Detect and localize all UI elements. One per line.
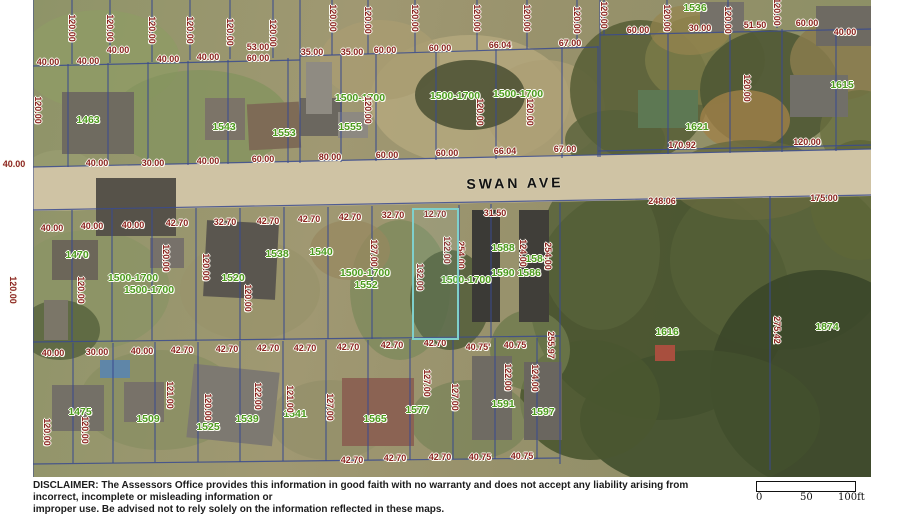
assessor-map-page: 120.00120.00120.00120.00120.00120.0040.0…	[0, 0, 900, 529]
parcel-number-label: 1500-1700	[335, 92, 385, 104]
dimension-label: 40.75	[469, 452, 492, 462]
dimension-label: 40.00	[197, 156, 220, 166]
dimension-label: 42.70	[339, 212, 362, 222]
dimension-label: 42.70	[298, 214, 321, 224]
dimension-label: 275.42	[772, 316, 782, 344]
dimension-label: 120.00	[723, 6, 733, 34]
parcel-number-label: 1621	[685, 121, 708, 133]
dimension-label: 60.00	[436, 148, 459, 158]
disclaimer-line-1: DISCLAIMER: The Assessors Office provide…	[33, 480, 688, 503]
dimension-label: 120.00	[772, 0, 782, 26]
dimension-label: 66.04	[489, 40, 512, 50]
parcel-number-label: 1590 1586	[491, 267, 541, 279]
dimension-label: 30.00	[86, 347, 109, 357]
dimension-label: 120.00	[161, 244, 171, 272]
dimension-label: 30.00	[142, 158, 165, 168]
dimension-label: 120.00	[742, 74, 752, 102]
dimension-label: 127.00	[422, 369, 432, 397]
dimension-label: 60.00	[376, 150, 399, 160]
dimension-label: 66.04	[494, 146, 517, 156]
parcel-number-label: 1565	[363, 413, 386, 425]
dimension-label: 42.70	[337, 342, 360, 352]
parcel-number-label: 1500-1700	[108, 272, 158, 284]
dimension-label: 40.75	[511, 451, 534, 461]
dimension-label: 120.00	[410, 4, 420, 32]
parcel-number-label: 1520	[221, 272, 244, 284]
street-label: SWAN AVE	[466, 174, 563, 192]
dimension-label: 60.00	[252, 154, 275, 164]
dimension-label: 255.97	[546, 331, 556, 359]
scale-tick-100: 100ft	[838, 492, 865, 503]
dimension-label: 60.00	[247, 53, 270, 63]
parcel-number-label: 1463	[76, 114, 99, 126]
parcel-number-label: 1536	[683, 2, 706, 14]
dimension-label: 60.00	[796, 18, 819, 28]
dimension-label: 42.70	[429, 452, 452, 462]
dimension-label: 42.70	[384, 453, 407, 463]
dimension-label: 120.00	[363, 6, 373, 34]
dimension-label: 120.00	[33, 96, 43, 124]
parcel-number-label: 1874	[815, 321, 838, 333]
dimension-label: 121.00	[165, 381, 175, 409]
parcel-number-label: 1588	[491, 242, 514, 254]
disclaimer-line-2: improper use. Be advised not to rely sol…	[33, 504, 444, 515]
scale-tick-50: 50	[800, 492, 813, 503]
dimension-label: 35.00	[301, 47, 324, 57]
dimension-label: 120.00	[80, 416, 90, 444]
scale-bar-rect	[756, 481, 856, 492]
dimension-label: 124.00	[530, 364, 540, 392]
parcel-number-label: 1553	[272, 127, 295, 139]
parcel-number-label: 1577	[405, 404, 428, 416]
dimension-label: 42.70	[381, 340, 404, 350]
dimension-label: 127.00	[450, 383, 460, 411]
parcel-number-label: 1509	[136, 413, 159, 425]
parcel-number-label: 1597	[531, 406, 554, 418]
dimension-label: 170.92	[668, 140, 696, 150]
dimension-label: 120.00	[147, 16, 157, 44]
dimension-label: 175.00	[810, 193, 838, 203]
parcel-number-label: 1500-1700	[493, 88, 543, 100]
dimension-label: 67.00	[559, 38, 582, 48]
parcel-map[interactable]: 120.00120.00120.00120.00120.00120.0040.0…	[0, 0, 900, 477]
dimension-label: 120.00	[67, 14, 77, 42]
dimension-label: 40.75	[504, 340, 527, 350]
dimension-label: 120.00	[203, 393, 213, 421]
dimension-label: 124.00	[518, 239, 528, 267]
dimension-label: 32.70	[214, 217, 237, 227]
parcel-number-label: 1539	[235, 413, 258, 425]
dimension-label: 120.00	[475, 98, 485, 126]
dimension-label: 120.00	[328, 4, 338, 32]
scale-bar: 0 50 100ft	[756, 481, 860, 504]
dimension-label: 51.50	[744, 20, 767, 30]
dimension-label: 120.00	[8, 276, 18, 304]
parcel-number-label: 1616	[655, 326, 678, 338]
dimension-label: 40.00	[41, 223, 64, 233]
dimension-label: 40.00	[122, 220, 145, 230]
parcel-number-label: 1552	[354, 279, 377, 291]
dimension-label: 40.75'	[466, 342, 491, 352]
dimension-label: 42.70	[294, 343, 317, 353]
dimension-label: 40.00	[131, 346, 154, 356]
dimension-label: 248.06	[648, 196, 676, 206]
dimension-label: 42.70	[166, 218, 189, 228]
dimension-label: 120.00	[243, 284, 253, 312]
dimension-label: 40.00	[107, 45, 130, 55]
dimension-label: 254.00	[543, 242, 553, 270]
parcel-number-label: 1500-1700	[124, 284, 174, 296]
dimension-label: 120.00	[472, 4, 482, 32]
scale-tick-0: 0	[756, 492, 762, 503]
dimension-label: 40.00	[834, 27, 857, 37]
dimension-label: 53.00	[247, 42, 270, 52]
dimension-label: 122.00	[253, 382, 263, 410]
parcel-number-label: 1500-1700	[430, 90, 480, 102]
dimension-label: 40.00	[197, 52, 220, 62]
dimension-label: 120.00	[662, 4, 672, 32]
dimension-label: 30.00	[689, 23, 712, 33]
dimension-label: 35.00	[341, 47, 364, 57]
dimension-label: 80.00	[319, 152, 342, 162]
dimension-label: 42.70	[171, 345, 194, 355]
parcel-number-label: 1543	[212, 121, 235, 133]
dimension-label: 60.00	[627, 25, 650, 35]
dimension-label: 127.00	[369, 239, 379, 267]
dimension-label: 121.00	[285, 385, 295, 413]
parcel-number-label: 1540	[309, 246, 332, 258]
disclaimer-text: DISCLAIMER: The Assessors Office provide…	[33, 480, 733, 516]
dimension-label: 120.00	[525, 98, 535, 126]
dimension-label: 42.70	[216, 344, 239, 354]
dimension-label: 32.70	[382, 210, 405, 220]
dimension-label: 31.50	[484, 208, 507, 218]
dimension-label: 40.00	[157, 54, 180, 64]
dimension-label: 122.00	[503, 363, 513, 391]
parcel-number-label: 1500-1700	[340, 267, 390, 279]
parcel-number-label: 1555	[338, 121, 361, 133]
dimension-label: 60.00	[374, 45, 397, 55]
dimension-label: 120.00	[225, 18, 235, 46]
dimension-label: 120.00	[793, 137, 821, 147]
dimension-label: 120.00	[572, 6, 582, 34]
dimension-label: 120.00	[363, 96, 373, 124]
dimension-label: 60.00	[429, 43, 452, 53]
dimension-label: 120.00	[42, 418, 52, 446]
dimension-label: 40.00	[81, 221, 104, 231]
dimension-label: 120.00	[599, 1, 609, 29]
dimension-label: 40.00	[37, 57, 60, 67]
parcel-number-label: 1470	[65, 249, 88, 261]
dimension-label: 120.00	[185, 16, 195, 44]
selected-parcel-highlight[interactable]	[412, 208, 459, 340]
dimension-label: 40.00	[42, 348, 65, 358]
dimension-label: 120.00	[76, 276, 86, 304]
parcel-number-label: 1538	[265, 248, 288, 260]
dimension-label: 120.00	[201, 253, 211, 281]
dimension-label: 40.00	[3, 159, 26, 169]
parcel-number-label: 1615	[830, 79, 853, 91]
dimension-label: 127.00	[325, 393, 335, 421]
dimension-label: 42.70	[257, 216, 280, 226]
dimension-label: 40.00	[86, 158, 109, 168]
dimension-label: 40.00	[77, 56, 100, 66]
dimension-label: 120.00	[522, 4, 532, 32]
dimension-label: 42.70	[341, 455, 364, 465]
parcel-number-label: 1525	[196, 421, 219, 433]
parcel-number-label: 1591	[491, 398, 514, 410]
dimension-label: 67.00	[554, 144, 577, 154]
dimension-label: 42.70	[257, 343, 280, 353]
dimension-label: 120.00	[105, 14, 115, 42]
